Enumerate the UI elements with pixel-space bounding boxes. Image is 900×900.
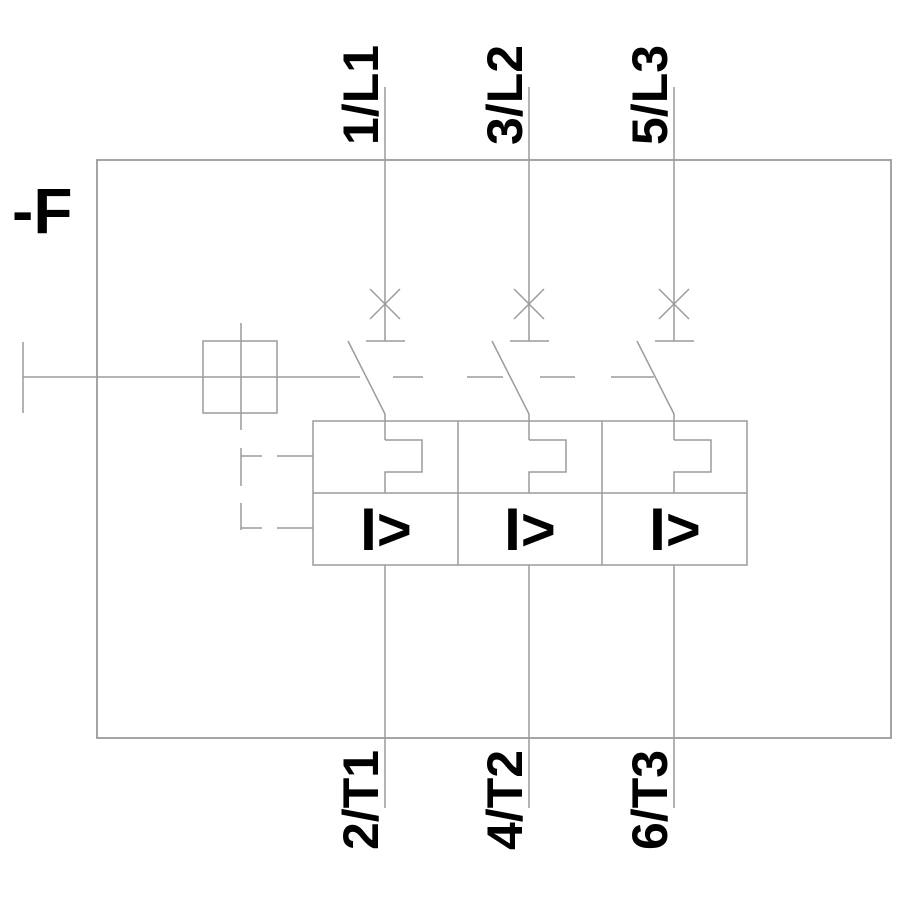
- thermal-overload-icon: [674, 440, 711, 493]
- pole-3-load-terminal-label: 6/T3: [622, 750, 678, 850]
- magnetic-overcurrent-icon: I>: [504, 496, 556, 563]
- magnetic-overcurrent-icon: I>: [360, 496, 412, 563]
- enclosure-outline: [97, 160, 891, 738]
- trip-linkage-dashed-bracket: [241, 448, 313, 530]
- pole-1-load-terminal-label: 2/T1: [333, 750, 389, 850]
- thermal-overload-icon: [529, 440, 566, 493]
- pole-3-line-terminal-label: 5/L3: [622, 45, 678, 145]
- pole-3: I> 5/L3 6/T3: [622, 45, 711, 850]
- schematic-canvas: -F: [0, 0, 900, 900]
- actuator-terminal-line: [23, 342, 360, 413]
- pole-2: I> 3/L2 4/T2: [477, 45, 566, 850]
- pole-1: I> 1/L1 2/T1: [333, 45, 422, 850]
- thermal-overload-icon: [385, 440, 422, 493]
- pole-1-line-terminal-label: 1/L1: [333, 45, 389, 145]
- device-label: -F: [12, 175, 72, 247]
- pole-2-line-terminal-label: 3/L2: [477, 45, 533, 145]
- circuit-breaker-schematic: -F: [0, 0, 900, 900]
- pole-2-load-terminal-label: 4/T2: [477, 750, 533, 850]
- magnetic-overcurrent-icon: I>: [649, 496, 701, 563]
